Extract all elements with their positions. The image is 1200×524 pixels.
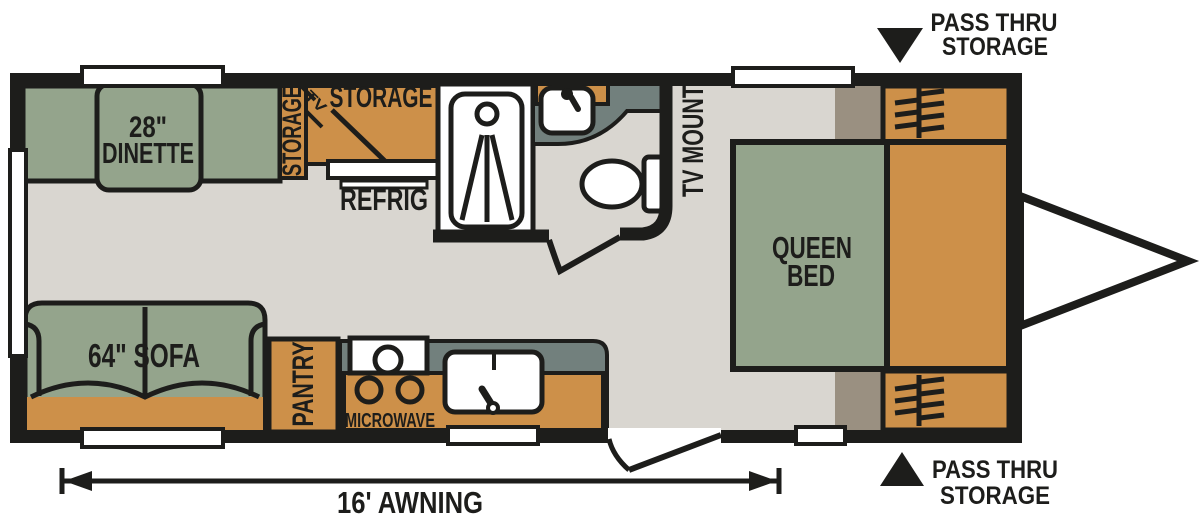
queen-bed-label-line2: BED (787, 258, 835, 293)
kitchen-area: PANTRY MICROWAVE (269, 338, 607, 432)
toilet-bowl-icon (582, 161, 642, 207)
sofa-seat (27, 397, 263, 430)
microwave-label: MICROWAVE (345, 410, 435, 432)
window-left (10, 150, 26, 356)
sofa-area: 64" SOFA (25, 303, 265, 431)
window-bottom-left (82, 429, 223, 447)
tv-mount-label: TV MOUNT (677, 85, 710, 197)
stove-burner-icon (375, 347, 401, 373)
floorplan-page: 28" DINETTE TV STORAGE STORAGE REFRIG (0, 0, 1200, 524)
pantry-label: PANTRY (287, 342, 320, 427)
pass-thru-bottom-label-line1: PASS THRU (932, 456, 1058, 484)
pass-thru-bottom-label-line2: STORAGE (940, 482, 1050, 510)
side-storage-label: STORAGE (277, 86, 307, 176)
pass-thru-top-label-line2: STORAGE (942, 33, 1048, 61)
sofa-label: 64" SOFA (88, 337, 200, 374)
queen-bed-base (887, 142, 1009, 369)
window-bottom-right (796, 427, 845, 444)
kitchen-faucet-icon (488, 403, 498, 413)
floorplan-svg: 28" DINETTE TV STORAGE STORAGE REFRIG (0, 0, 1200, 524)
dinette-label: DINETTE (102, 138, 194, 170)
refrigerator-label: REFRIG (340, 182, 428, 217)
shower-head-icon (477, 104, 497, 124)
awning-label: 16' AWNING (337, 485, 483, 520)
window-top-left (82, 67, 223, 86)
dinette-area: 28" DINETTE (23, 84, 280, 190)
shower-area (438, 84, 533, 237)
overhead-storage-label: STORAGE (330, 81, 433, 114)
window-top-right (733, 68, 853, 86)
bedside-shelf-top (835, 86, 883, 142)
refrigerator-front (328, 161, 438, 178)
bedside-shelf-bottom (835, 371, 883, 430)
window-bottom-center (448, 427, 538, 444)
